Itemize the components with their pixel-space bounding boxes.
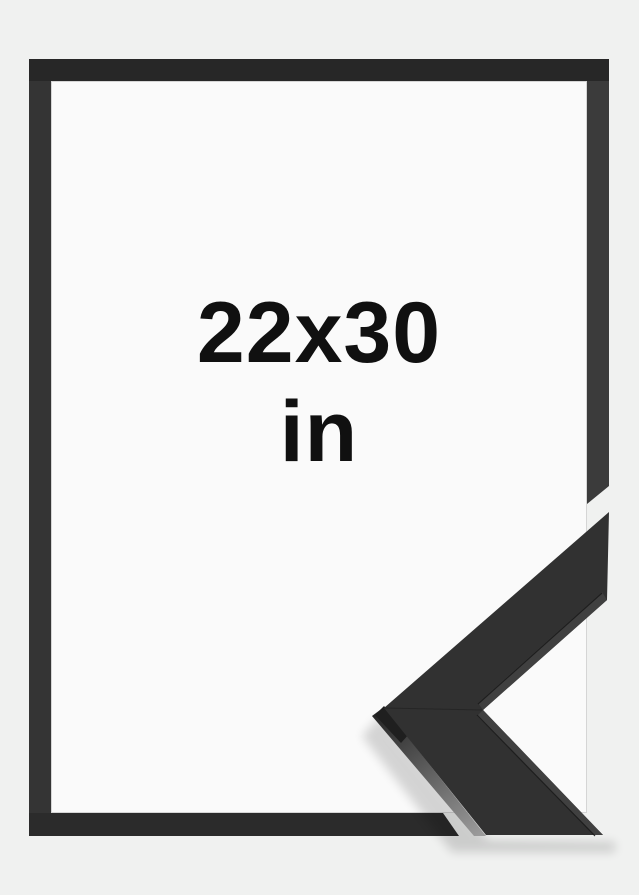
product-image: 22x30 in xyxy=(0,0,639,895)
frame-interior xyxy=(51,81,587,813)
frame-border-top xyxy=(29,59,609,81)
frame-border-bottom xyxy=(29,813,459,836)
frame-border-right xyxy=(587,59,609,504)
frame-border-left xyxy=(29,59,51,836)
frame-photo xyxy=(0,0,639,895)
